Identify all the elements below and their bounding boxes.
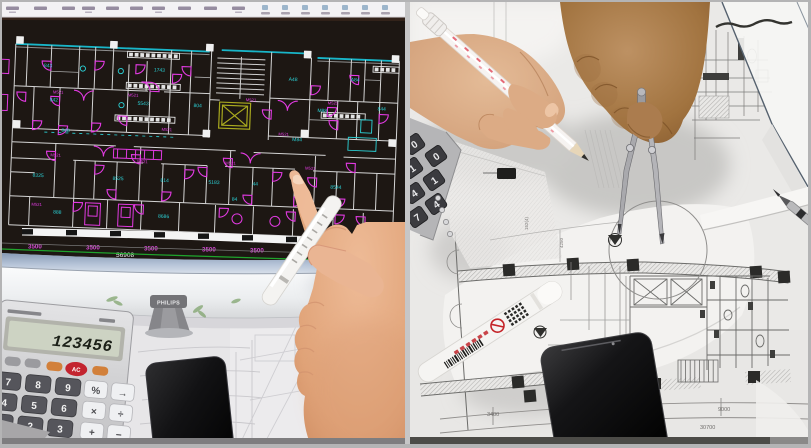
svg-text:×: ×: [90, 406, 97, 418]
svg-text:8686: 8686: [158, 214, 170, 220]
svg-text:M88: M88: [317, 108, 327, 114]
svg-text:5543: 5543: [137, 101, 149, 107]
svg-text:3500: 3500: [86, 245, 100, 252]
svg-text:M521: M521: [137, 159, 148, 164]
svg-text:M521: M521: [50, 152, 61, 157]
svg-text:3400: 3400: [487, 412, 499, 418]
svg-text:843: 843: [44, 63, 53, 69]
svg-text:8525: 8525: [112, 176, 124, 182]
svg-text:A48: A48: [288, 77, 297, 83]
svg-text:848: 848: [61, 128, 70, 134]
svg-text:A84: A84: [351, 77, 360, 83]
svg-text:M84: M84: [292, 137, 302, 143]
svg-text:M521: M521: [161, 127, 172, 132]
svg-text:+: +: [88, 427, 95, 439]
svg-text:8544: 8544: [330, 185, 342, 191]
svg-text:888: 888: [53, 209, 62, 215]
svg-text:842: 842: [49, 97, 58, 103]
svg-text:M521: M521: [53, 89, 64, 94]
svg-text:PHILIPS: PHILIPS: [157, 301, 180, 307]
svg-text:M521: M521: [246, 97, 257, 102]
svg-text:84: 84: [232, 197, 238, 203]
svg-text:1743: 1743: [154, 67, 166, 73]
svg-text:9000: 9000: [718, 407, 730, 413]
svg-text:5183: 5183: [208, 180, 220, 186]
svg-text:4250: 4250: [559, 237, 564, 248]
svg-text:M521: M521: [31, 202, 42, 207]
svg-text:44: 44: [252, 181, 258, 187]
svg-text:M521: M521: [225, 160, 236, 165]
svg-text:M521: M521: [128, 92, 139, 97]
svg-text:814: 814: [160, 178, 169, 184]
svg-text:804: 804: [193, 103, 202, 109]
svg-text:8325: 8325: [32, 173, 44, 179]
svg-text:AC: AC: [72, 367, 82, 374]
svg-text:M521: M521: [328, 100, 339, 105]
svg-text:152(4): 152(4): [524, 216, 529, 230]
svg-text:%: %: [91, 385, 101, 397]
svg-text:844: 844: [377, 106, 386, 112]
svg-text:3500: 3500: [144, 246, 158, 253]
svg-text:30700: 30700: [700, 425, 715, 431]
svg-text:M521: M521: [278, 131, 289, 136]
svg-text:→: →: [117, 388, 128, 400]
svg-text:M521: M521: [305, 166, 316, 171]
